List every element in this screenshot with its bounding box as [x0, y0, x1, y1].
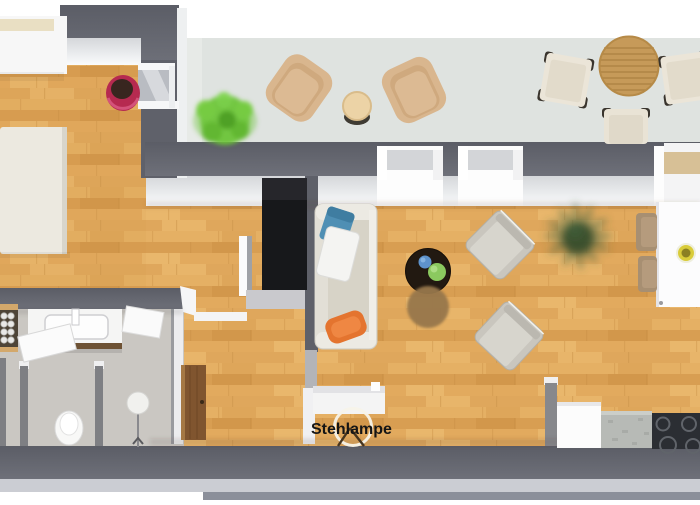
svg-text:Stehlampe: Stehlampe	[311, 421, 392, 438]
